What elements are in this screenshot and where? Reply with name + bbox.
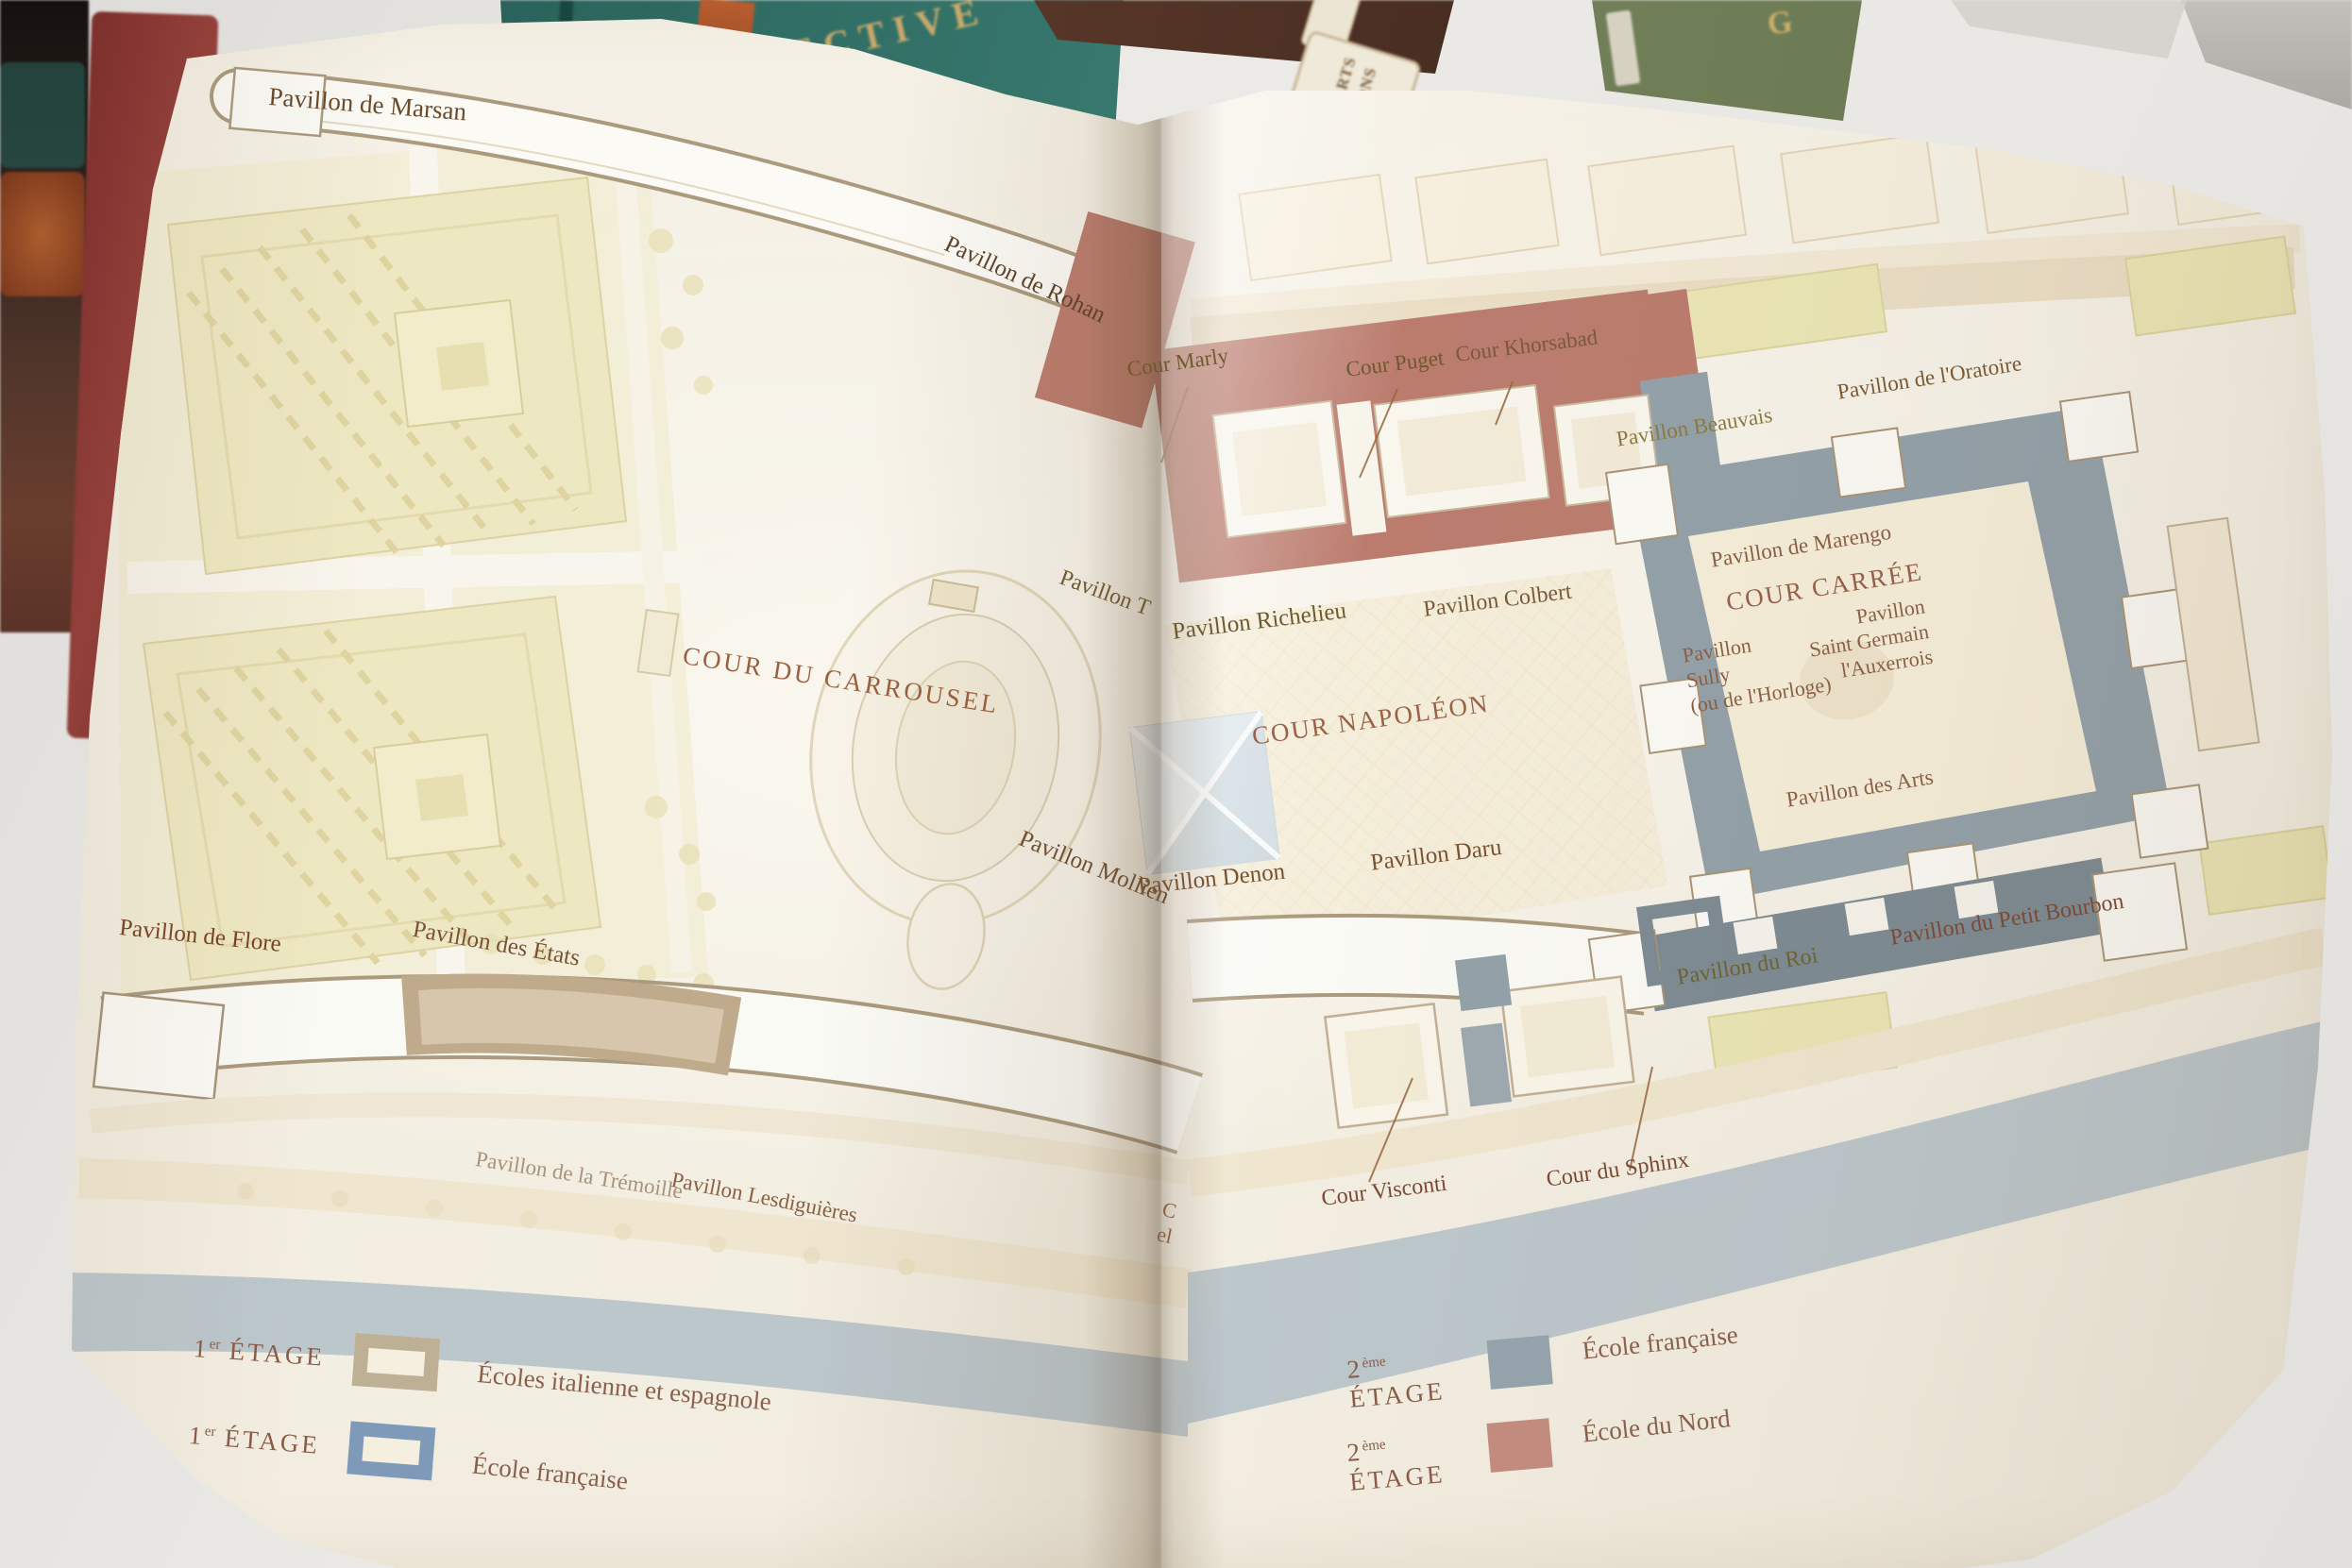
legend-swatch-ecole-francaise-2eme (1486, 1335, 1552, 1390)
legend-floor-label: 2ème ÉTAGE (1345, 1426, 1492, 1497)
tuileries-garden (118, 132, 716, 994)
green-book-letter: G (1765, 4, 1794, 42)
cour-du-sphinx-court (1501, 977, 1634, 1097)
floor-sup: ème (1362, 1437, 1386, 1454)
floor-number: 1 (193, 1334, 211, 1363)
legend-swatch-ecoles-italienne-espagnole (352, 1333, 441, 1391)
floor-sup: ème (1362, 1354, 1386, 1371)
floor-sup: er (209, 1337, 221, 1353)
background-book-teal-edge (0, 62, 85, 168)
cour-visconti-court (1325, 1003, 1447, 1127)
legend-floor-label: 1er ÉTAGE (193, 1334, 355, 1374)
flore-south-wing (91, 993, 1190, 1172)
cour-puget-court (1374, 385, 1548, 517)
floor-sup: er (204, 1424, 216, 1440)
background-book-orange-edge (0, 172, 85, 296)
legend-floor-label: 1er ÉTAGE (188, 1421, 350, 1462)
photo-background: PECTIVE X ARTS TIONS G (0, 0, 2352, 1568)
legend-swatch-ecole-du-nord (1486, 1418, 1552, 1473)
green-book-label-edge (1606, 10, 1641, 87)
cour-marly-court (1213, 401, 1346, 537)
louvre-pyramid (1130, 712, 1279, 874)
floor-word: ÉTAGE (228, 1336, 326, 1371)
cour-carree-complex (1606, 392, 2259, 935)
floor-word: ÉTAGE (224, 1424, 321, 1459)
legend-swatch-ecole-francaise-1er (347, 1421, 435, 1480)
floor-number: 1 (188, 1421, 206, 1450)
legend-floor-label: 2ème ÉTAGE (1345, 1343, 1492, 1414)
place-du-carrousel-roundabout (638, 548, 1128, 995)
